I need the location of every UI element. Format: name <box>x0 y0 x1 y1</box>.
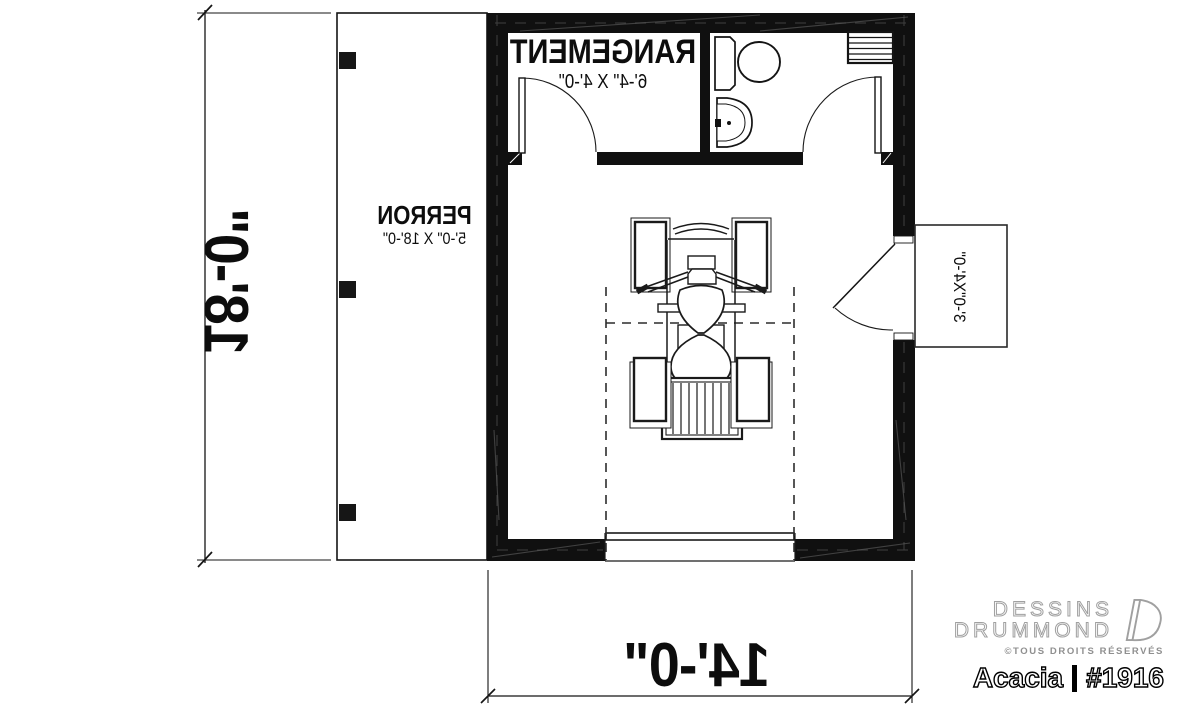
plan-identifier: Acacia #1916 <box>914 662 1164 694</box>
brand-name: DESSINS DRUMMOND <box>954 599 1113 641</box>
drummond-logo-icon <box>1122 597 1164 643</box>
entry-door <box>833 236 913 340</box>
shelf-unit <box>848 32 893 63</box>
brand-name-line1: DESSINS <box>954 599 1113 620</box>
porch-outline <box>337 13 487 560</box>
porch-post <box>339 504 356 521</box>
stoop-dimension-text: 3'-0"X4'-0" <box>949 229 969 346</box>
bathroom-door <box>803 77 881 153</box>
plan-name: Acacia <box>973 662 1063 694</box>
porch-post <box>339 281 356 298</box>
plan-number: #1916 <box>1086 662 1164 694</box>
separator-bar <box>1072 665 1077 692</box>
room-dims: 5'-0" X 18'-0" <box>359 230 491 248</box>
garage-door <box>605 533 795 561</box>
room-name: RANGEMENT <box>501 34 705 71</box>
faucet-icon <box>715 119 721 127</box>
room-label-perron: PERRON 5'-0" X 18'-0" <box>359 201 491 248</box>
branding-block: DESSINS DRUMMOND ©TOUS DROITS RÉSERVÉS A… <box>914 597 1164 694</box>
toilet <box>715 37 780 90</box>
atv-vehicle <box>630 218 772 439</box>
room-dims: 6'-4" X 4'-0" <box>501 72 705 94</box>
sink <box>715 98 752 147</box>
dimension-height-text: 18'-0" <box>195 183 255 381</box>
room-name: PERRON <box>359 201 491 229</box>
room-label-rangement: RANGEMENT 6'-4" X 4'-0" <box>501 34 705 93</box>
floor-plan-canvas: RANGEMENT 6'-4" X 4'-0" PERRON 5'-0" X 1… <box>0 0 1200 711</box>
dimension-width-text: 14'-0" <box>562 636 832 696</box>
porch-post <box>339 52 356 69</box>
brand-name-line2: DRUMMOND <box>954 620 1113 641</box>
copyright-text: ©TOUS DROITS RÉSERVÉS <box>914 646 1164 657</box>
